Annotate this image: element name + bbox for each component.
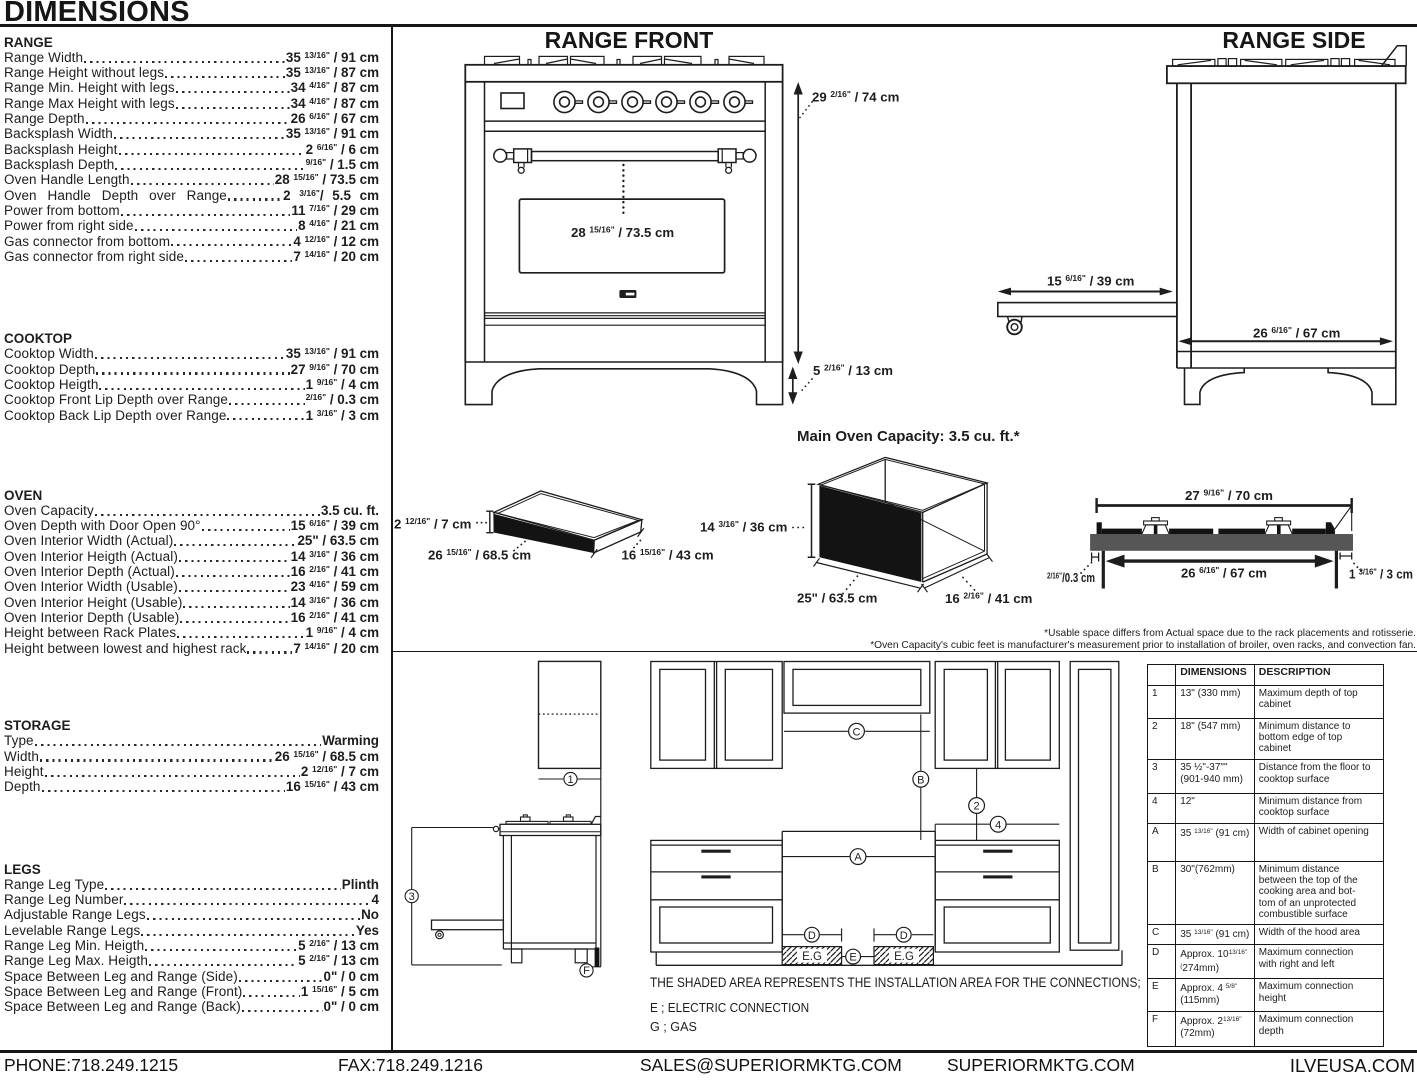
svg-text:2: 2	[974, 801, 980, 813]
svg-text:A: A	[854, 852, 862, 864]
svg-text:4: 4	[995, 819, 1001, 831]
svg-text:28 15/16" / 73.5 cm: 28 15/16" / 73.5 cm	[571, 225, 674, 241]
svg-text:1 3/16" / 3 cm: 1 3/16" / 3 cm	[1349, 566, 1413, 581]
svg-text:1: 1	[567, 774, 573, 786]
svg-text:B: B	[917, 774, 924, 786]
svg-text:3: 3	[409, 891, 415, 903]
svg-text:26 15/16" / 68.5 cm: 26 15/16" / 68.5 cm	[428, 547, 531, 563]
svg-text:27 9/16" / 70 cm: 27 9/16" / 70 cm	[1185, 488, 1273, 504]
svg-text:E: E	[849, 952, 856, 964]
svg-text:D: D	[808, 930, 816, 942]
svg-text:14 3/16" / 36 cm: 14 3/16" / 36 cm	[700, 519, 787, 535]
svg-text:16 2/16" / 41 cm: 16 2/16" / 41 cm	[945, 591, 1032, 607]
svg-text:C: C	[853, 726, 861, 738]
svg-text:F: F	[583, 965, 590, 977]
svg-text:E.G: E.G	[894, 951, 914, 963]
svg-text:15 6/16" / 39 cm: 15 6/16" / 39 cm	[1047, 273, 1134, 289]
svg-text:25" / 63.5 cm: 25" / 63.5 cm	[797, 591, 877, 606]
svg-text:26 6/16" / 67 cm: 26 6/16" / 67 cm	[1181, 565, 1267, 581]
svg-text:2 12/16" / 7 cm: 2 12/16" / 7 cm	[394, 516, 471, 532]
svg-text:2/16"/0.3 cm: 2/16"/0.3 cm	[1047, 570, 1095, 585]
svg-text:29 2/16" / 74 cm: 29 2/16" / 74 cm	[812, 89, 899, 105]
svg-text:16 15/16" / 43 cm: 16 15/16" / 43 cm	[622, 547, 714, 563]
svg-text:D: D	[900, 930, 908, 942]
svg-text:5 2/16" / 13 cm: 5 2/16" / 13 cm	[813, 363, 893, 379]
svg-text:26 6/16" / 67 cm: 26 6/16" / 67 cm	[1253, 325, 1340, 341]
svg-text:E.G: E.G	[802, 951, 822, 963]
